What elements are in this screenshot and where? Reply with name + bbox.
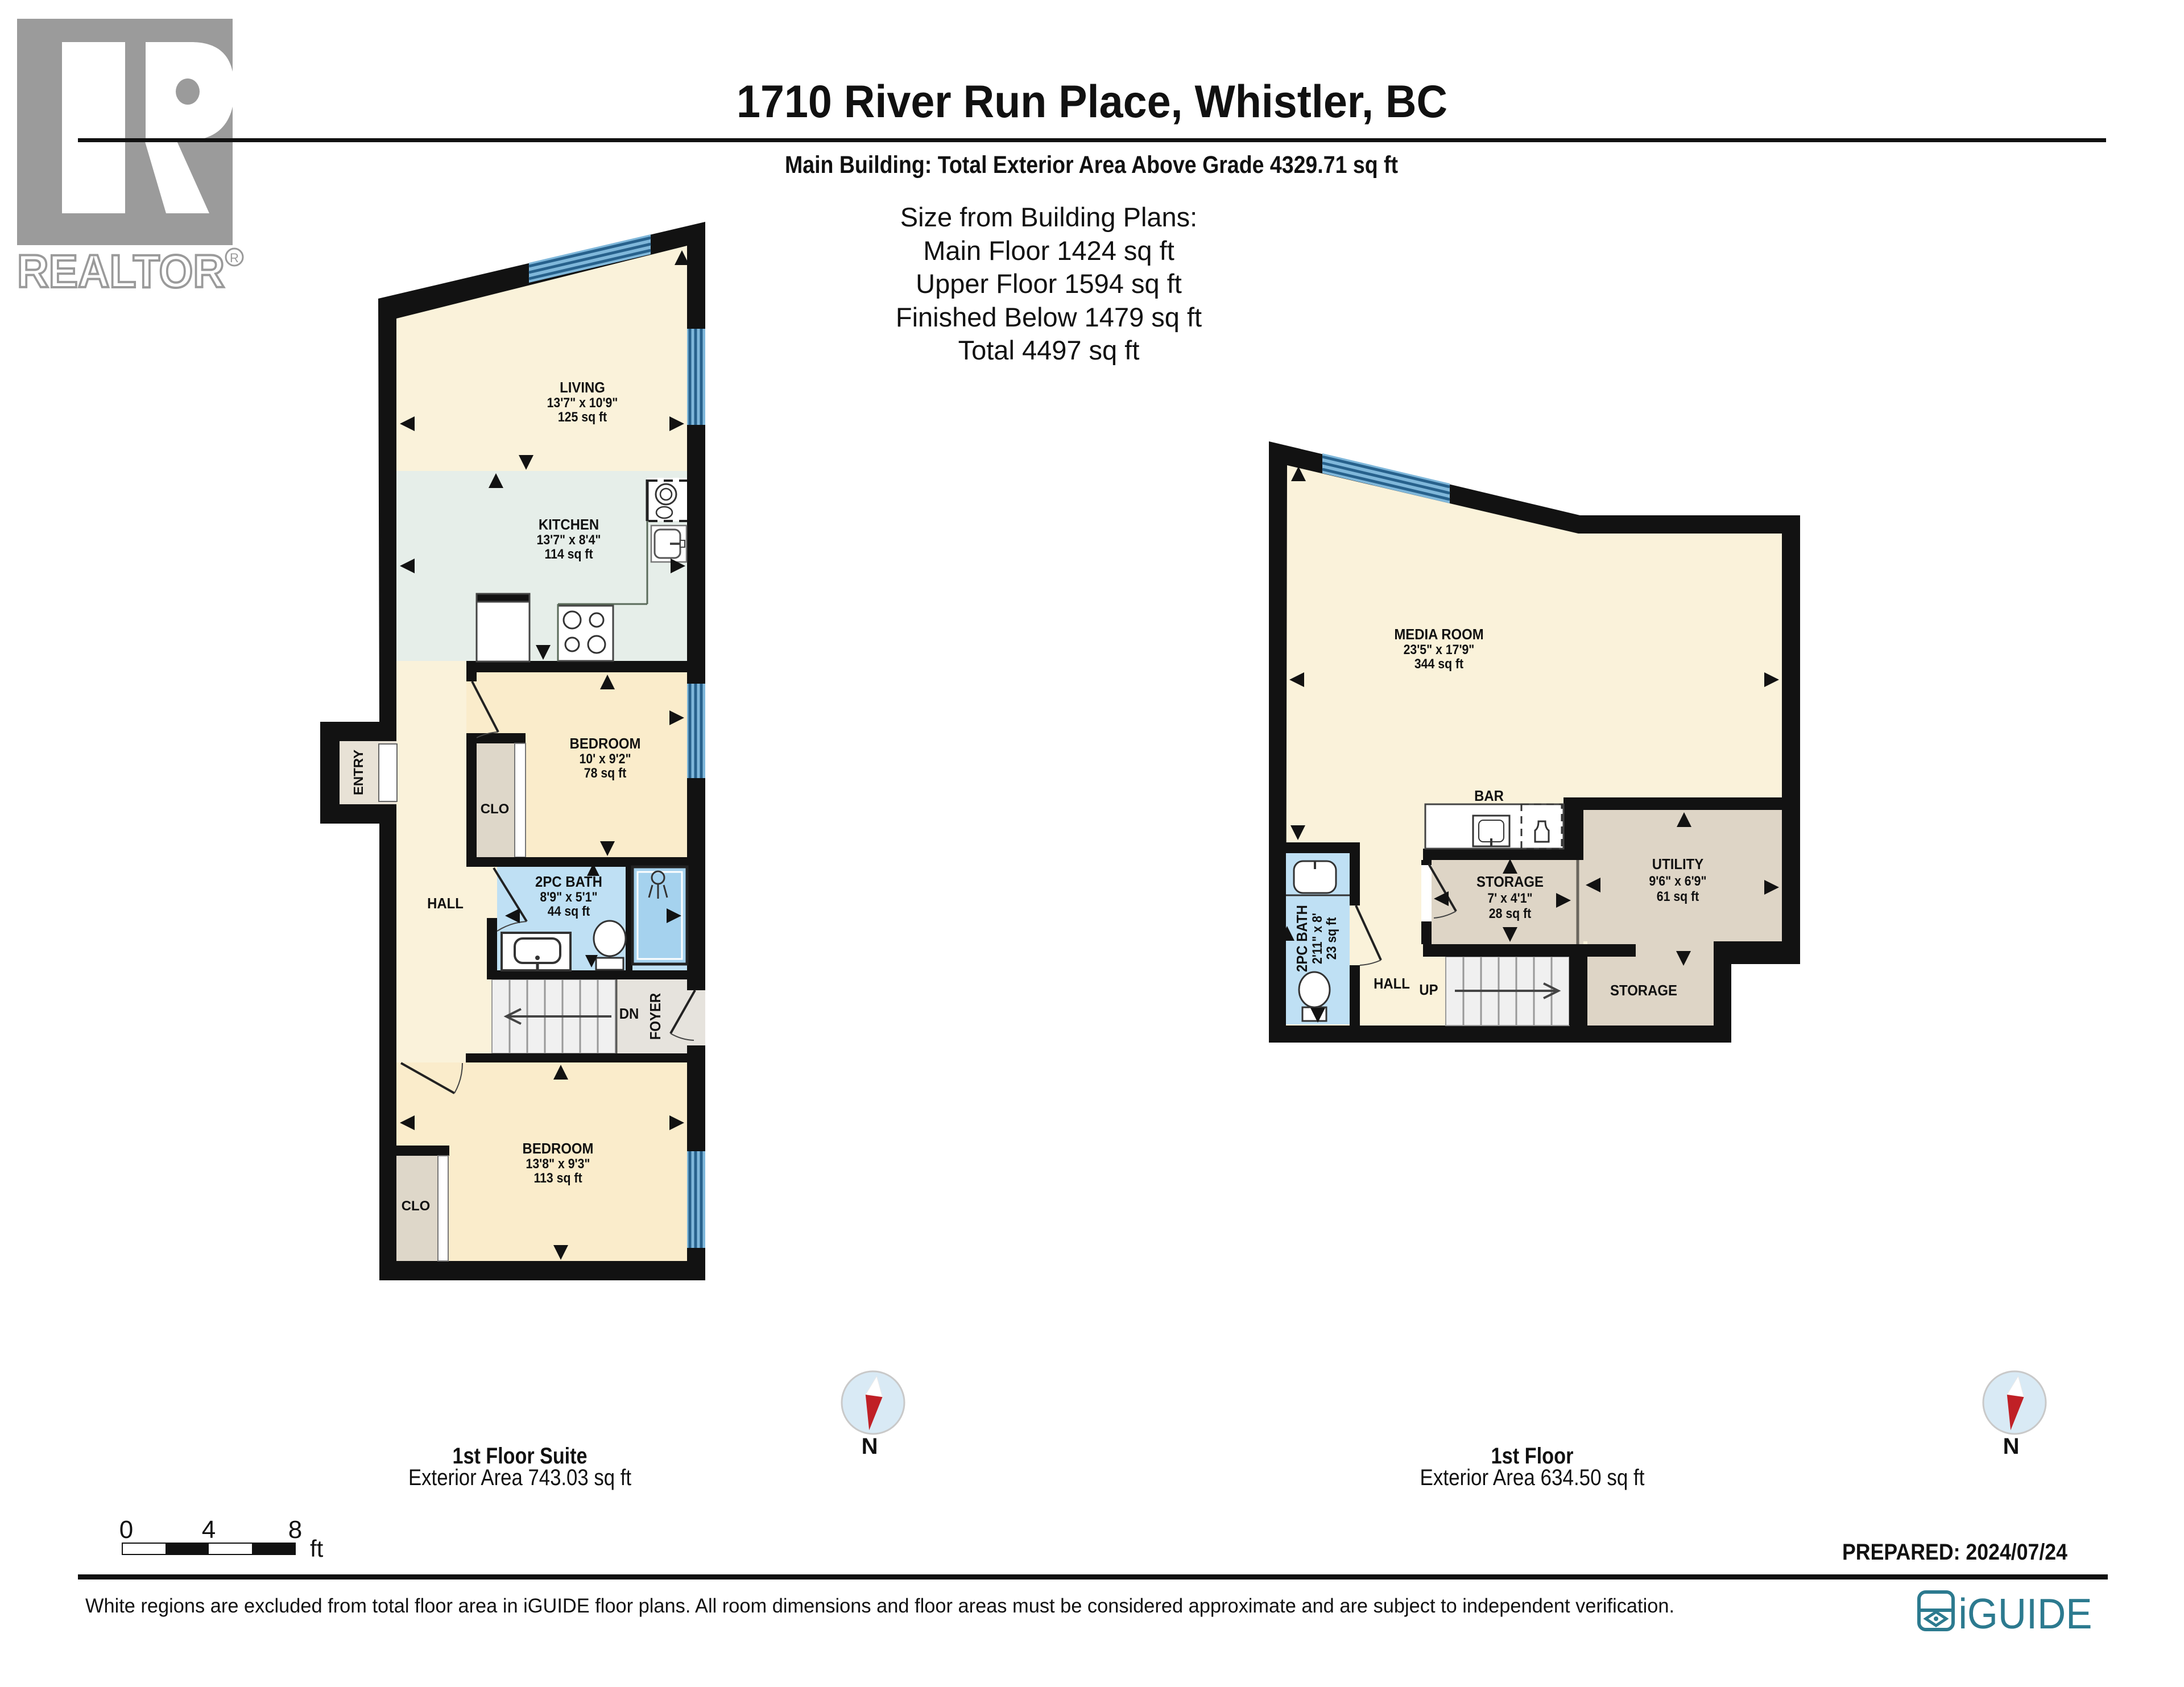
svg-text:REALTOR: REALTOR xyxy=(17,246,225,297)
svg-text:KITCHEN: KITCHEN xyxy=(539,516,599,533)
svg-text:78 sq ft: 78 sq ft xyxy=(584,766,627,781)
svg-text:ft: ft xyxy=(310,1535,324,1562)
svg-text:2PC BATH: 2PC BATH xyxy=(1293,905,1310,972)
svg-text:Main Building: Total Exterior: Main Building: Total Exterior Area Above… xyxy=(785,151,1398,179)
svg-text:LIVING: LIVING xyxy=(560,379,605,396)
svg-text:9'6" x 6'9": 9'6" x 6'9" xyxy=(1649,874,1706,889)
svg-text:Size from Building Plans:: Size from Building Plans: xyxy=(900,202,1197,232)
svg-text:FOYER: FOYER xyxy=(647,993,664,1040)
svg-text:HALL: HALL xyxy=(1374,975,1410,992)
svg-text:UTILITY: UTILITY xyxy=(1652,855,1703,873)
svg-text:Exterior Area 743.03 sq ft: Exterior Area 743.03 sq ft xyxy=(408,1465,631,1490)
svg-text:PREPARED: 2024/07/24: PREPARED: 2024/07/24 xyxy=(1842,1540,2068,1565)
svg-text:0: 0 xyxy=(119,1516,133,1544)
svg-text:BEDROOM: BEDROOM xyxy=(523,1140,594,1157)
svg-text:N: N xyxy=(2003,1434,2020,1459)
svg-text:4: 4 xyxy=(202,1516,216,1544)
svg-text:N: N xyxy=(862,1434,878,1459)
svg-text:Finished Below 1479 sq ft: Finished Below 1479 sq ft xyxy=(896,302,1202,332)
svg-text:STORAGE: STORAGE xyxy=(1476,873,1544,890)
svg-text:114 sq ft: 114 sq ft xyxy=(544,547,593,562)
svg-text:113 sq ft: 113 sq ft xyxy=(533,1171,582,1186)
svg-text:344 sq ft: 344 sq ft xyxy=(1414,656,1463,672)
svg-text:MEDIA ROOM: MEDIA ROOM xyxy=(1394,626,1483,643)
svg-text:UP: UP xyxy=(1419,981,1438,998)
svg-text:Exterior Area 634.50 sq ft: Exterior Area 634.50 sq ft xyxy=(1420,1465,1645,1490)
svg-text:Upper Floor 1594 sq ft: Upper Floor 1594 sq ft xyxy=(916,268,1182,299)
svg-text:DN: DN xyxy=(619,1005,639,1022)
svg-text:23 sq ft: 23 sq ft xyxy=(1324,917,1339,960)
svg-text:8: 8 xyxy=(288,1516,302,1544)
svg-text:13'8" x 9'3": 13'8" x 9'3" xyxy=(526,1156,590,1172)
svg-text:2'11" x 8': 2'11" x 8' xyxy=(1310,913,1325,964)
svg-text:STORAGE: STORAGE xyxy=(1610,982,1677,999)
svg-text:White regions are excluded fro: White regions are excluded from total fl… xyxy=(85,1595,1674,1617)
svg-text:7' x 4'1": 7' x 4'1" xyxy=(1487,891,1532,906)
svg-text:Total 4497 sq ft: Total 4497 sq ft xyxy=(958,335,1140,365)
svg-text:10' x 9'2": 10' x 9'2" xyxy=(579,751,631,767)
svg-text:13'7" x 8'4": 13'7" x 8'4" xyxy=(537,532,601,548)
svg-text:R: R xyxy=(230,251,239,265)
svg-text:13'7" x 10'9": 13'7" x 10'9" xyxy=(547,395,618,411)
svg-text:8'9" x 5'1": 8'9" x 5'1" xyxy=(540,890,597,905)
svg-text:Main Floor 1424 sq ft: Main Floor 1424 sq ft xyxy=(923,235,1174,266)
svg-text:CLO: CLO xyxy=(402,1198,431,1214)
svg-text:28 sq ft: 28 sq ft xyxy=(1489,906,1532,921)
svg-text:BAR: BAR xyxy=(1474,787,1504,804)
svg-text:ENTRY: ENTRY xyxy=(351,750,366,795)
svg-text:CLO: CLO xyxy=(481,801,510,817)
svg-text:125 sq ft: 125 sq ft xyxy=(558,410,607,425)
svg-text:23'5" x 17'9": 23'5" x 17'9" xyxy=(1404,642,1475,658)
svg-text:BEDROOM: BEDROOM xyxy=(570,735,641,752)
svg-text:44 sq ft: 44 sq ft xyxy=(548,904,590,919)
svg-text:HALL: HALL xyxy=(427,895,464,912)
svg-text:1710 River Run Place, Whistler: 1710 River Run Place, Whistler, BC xyxy=(737,76,1447,127)
svg-text:iGUIDE: iGUIDE xyxy=(1959,1590,2092,1638)
svg-text:61 sq ft: 61 sq ft xyxy=(1657,889,1699,904)
